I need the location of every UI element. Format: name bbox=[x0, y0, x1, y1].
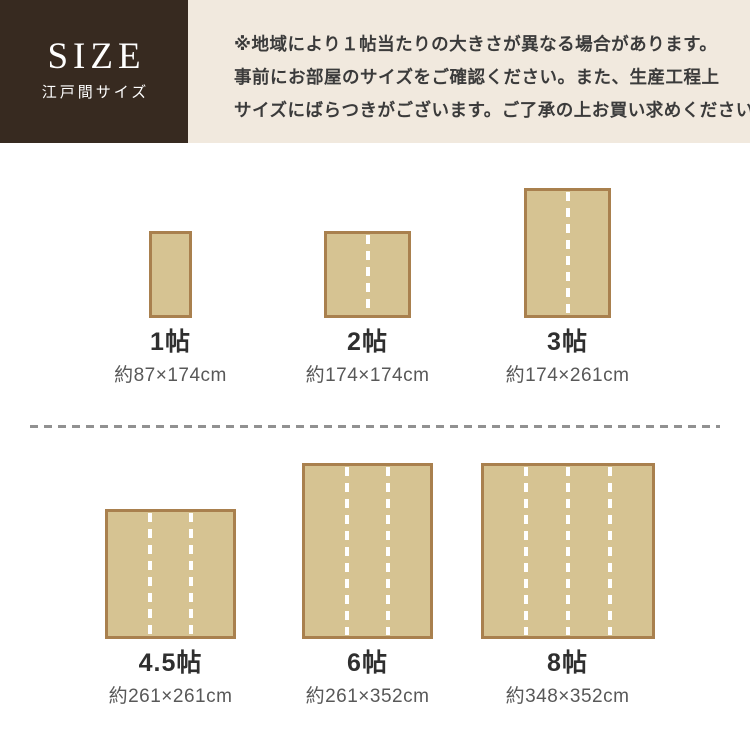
tatami-divider-dash-line bbox=[566, 467, 570, 635]
rug-size-label: 2帖 bbox=[347, 330, 388, 355]
tatami-divider-dash-line bbox=[524, 467, 528, 635]
tatami-divider-dash-line bbox=[345, 467, 349, 635]
tatami-divider-dash-line bbox=[608, 467, 612, 635]
tatami-divider-dash-line bbox=[366, 235, 370, 314]
page-subtitle: 江戸間サイズ bbox=[42, 85, 150, 100]
note-line-2: 事前にお部屋のサイズをご確認ください。また、生産工程上 bbox=[234, 61, 750, 94]
rug-dimensions: 約261×352cm bbox=[306, 687, 430, 706]
rug-illustration bbox=[481, 463, 655, 639]
rug-size-label: 6帖 bbox=[347, 651, 388, 676]
header: SIZE 江戸間サイズ ※地域により１帖当たりの大きさが異なる場合があります。 … bbox=[0, 0, 750, 143]
tatami-divider-dash-line bbox=[386, 467, 390, 635]
tatami-divider-dash-line bbox=[566, 192, 570, 315]
rug-illustration bbox=[324, 231, 411, 318]
rug-dimensions: 約174×174cm bbox=[306, 366, 430, 385]
rug-illustration bbox=[105, 509, 236, 640]
size-chart-page: SIZE 江戸間サイズ ※地域により１帖当たりの大きさが異なる場合があります。 … bbox=[0, 0, 750, 750]
rug-size-label: 3帖 bbox=[547, 330, 588, 355]
rug-dimensions: 約261×261cm bbox=[109, 687, 233, 706]
rug-size-label: 8帖 bbox=[547, 651, 588, 676]
rug-illustration bbox=[149, 231, 193, 318]
rug-dimensions: 約348×352cm bbox=[506, 687, 630, 706]
tatami-divider-dash-line bbox=[148, 513, 152, 636]
title-box: SIZE 江戸間サイズ bbox=[0, 0, 188, 143]
note-line-1: ※地域により１帖当たりの大きさが異なる場合があります。 bbox=[234, 28, 750, 61]
rug-illustration bbox=[302, 463, 433, 639]
row-divider-dashed-line bbox=[30, 425, 720, 428]
size-note: ※地域により１帖当たりの大きさが異なる場合があります。 事前にお部屋のサイズをご… bbox=[188, 0, 750, 143]
rug-illustration bbox=[524, 188, 611, 319]
rug-size-label: 4.5帖 bbox=[139, 651, 203, 676]
tatami-divider-dash-line bbox=[189, 513, 193, 636]
rug-size-label: 1帖 bbox=[150, 330, 191, 355]
note-line-3: サイズにばらつきがございます。ご了承の上お買い求めください。 bbox=[234, 94, 750, 127]
page-title: SIZE bbox=[47, 38, 145, 75]
rug-dimensions: 約174×261cm bbox=[506, 366, 630, 385]
rug-dimensions: 約87×174cm bbox=[114, 366, 227, 385]
